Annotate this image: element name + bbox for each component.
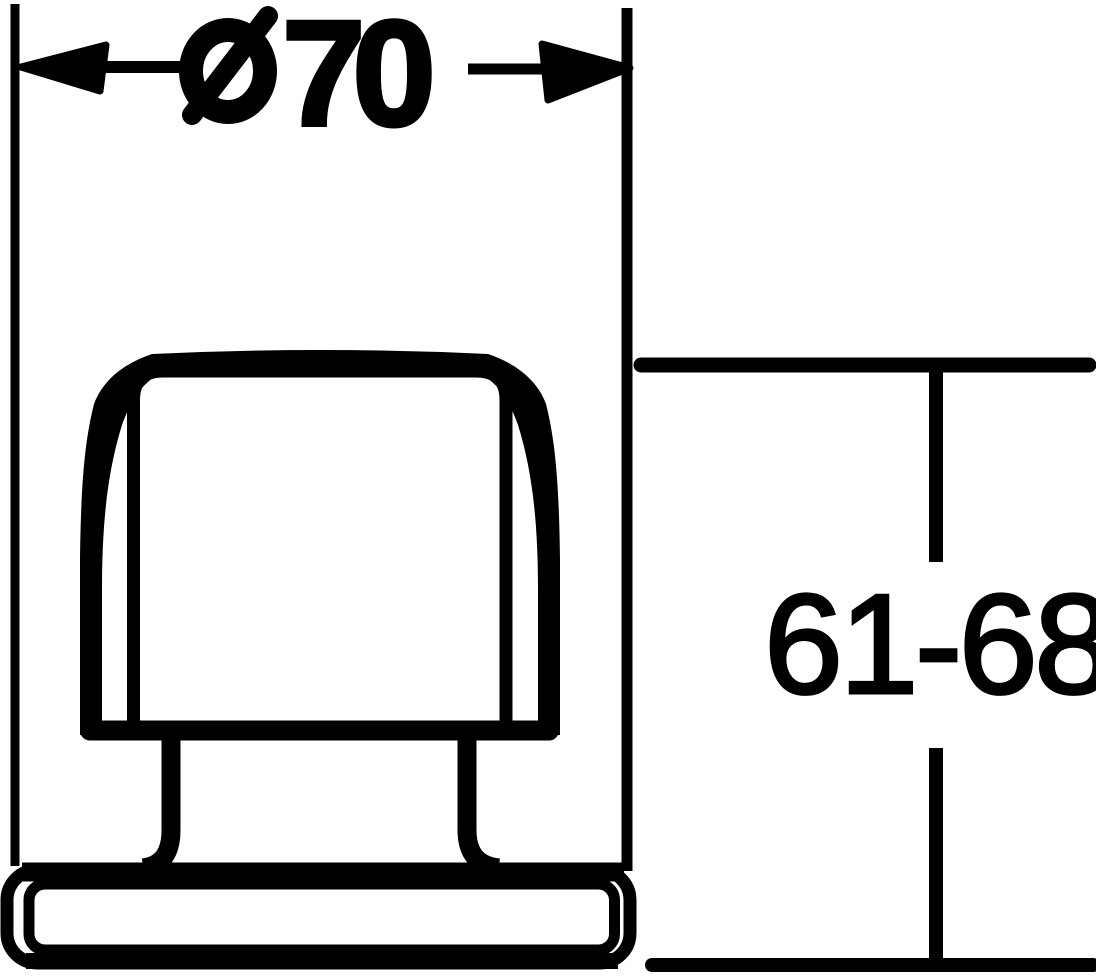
svg-text:61-68: 61-68 (764, 565, 1096, 724)
svg-text:70: 70 (282, 0, 430, 157)
